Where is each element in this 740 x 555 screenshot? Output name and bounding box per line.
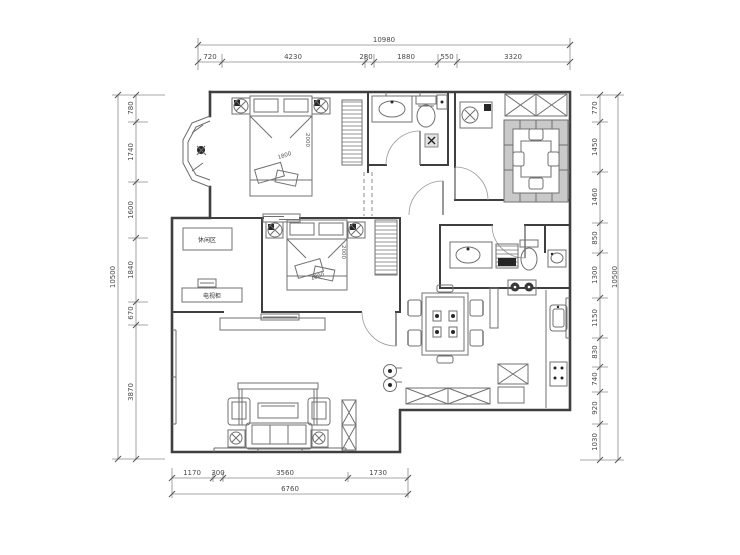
chair-icon [529,178,543,189]
kitchen-sink-icon [550,305,567,331]
place-setting-icon [433,311,441,321]
dim-label: 770 [591,101,599,114]
shelf-icon [437,95,447,109]
side-table-lamp-icon [311,430,328,447]
sink-icon [372,96,412,122]
dim-label: 3320 [504,53,522,61]
dim-label: 1730 [369,469,387,477]
dim-label: 3870 [127,383,135,401]
place-setting-icon [433,327,441,337]
dimension-bottom: 1170 300 3560 1730 6760 [169,468,411,498]
nightstand-icon [348,222,365,238]
dim-label: 550 [440,53,453,61]
chair-icon [513,152,524,166]
nightstand-icon [232,98,250,114]
armchair-icon [308,398,330,425]
dimension-right: 10500 770 1450 1460 850 1300 1150 830 74… [580,92,624,463]
wardrobe-icon [342,100,362,165]
bedroom2: 2000 1800 [266,220,397,290]
dim-label: 10980 [373,36,395,44]
washing-machine-icon [496,244,518,268]
sink-icon [450,242,492,268]
double-bed-icon [250,96,312,196]
dim-label: 740 [591,372,599,385]
study-door [455,167,488,200]
tall-cabinet-icon [342,400,356,450]
cabinet-icon [498,387,524,403]
leisure-area-label: 休闲区 [198,236,216,244]
dim-label: 10500 [611,266,619,288]
dim-label: 920 [591,401,599,414]
hand-basin-icon [548,250,566,267]
toilet-icon [416,96,436,127]
coffee-table-icon [258,403,298,418]
dim-label: 830 [591,345,599,358]
dim-label: 1460 [591,188,599,206]
dimension-top: 10980 720 4230 280 1880 550 3320 [195,36,573,70]
storage-cabinet-icon [505,94,567,116]
chair-icon [470,300,483,316]
sofa-icon [246,423,312,449]
hall-door [409,181,443,215]
living-room [220,314,356,450]
bed2-length-label: 2000 [340,245,346,259]
floor-plan-canvas: 2000 1800 2000 1800 休闲区 电视柜 [0,0,740,555]
tatami-platform-icon [504,120,568,202]
dining-table-icon [422,293,468,355]
bed1-width-label: 1800 [277,151,293,161]
floor-plan-page: 2000 1800 2000 1800 休闲区 电视柜 [0,0,740,555]
chair-icon [548,152,559,166]
cased-opening-dashes [364,172,372,216]
dim-label: 1170 [183,469,201,477]
dim-label: 1300 [591,266,599,284]
dim-label: 780 [127,101,135,114]
dim-label: 1450 [591,138,599,156]
chair-icon [408,330,421,346]
nightstand-icon [312,98,330,114]
nightstand-icon [266,222,283,238]
dim-label: 850 [591,231,599,244]
base-cabinet-icon [498,364,528,384]
fridge-icon [550,362,567,386]
chair-icon [408,300,421,316]
dim-label: 4230 [284,53,302,61]
kitchen-tall-cabinet [490,288,498,328]
bathroom1-door [386,131,420,165]
tv-cabinet-label: 电视柜 [203,292,221,300]
water-heater-icon [384,365,403,392]
kitchen [384,280,568,408]
tv-icon [261,314,299,320]
place-setting-icon [449,327,457,337]
tea-table-icon [521,141,551,177]
dimension-left: 10500 780 1740 1600 1840 670 3870 [109,92,165,462]
bedroom1: 2000 1800 [232,96,362,196]
dim-label: 720 [203,53,216,61]
floor-drain-icon [425,134,438,147]
toilet-icon [520,240,538,270]
dim-label: 3560 [276,469,294,477]
dim-label: 280 [359,53,372,61]
chair-icon [437,356,453,363]
study-room [460,94,568,202]
dining-area [408,285,483,363]
dim-label: 6760 [281,485,299,493]
bathroom2 [450,240,566,270]
chair-icon [470,330,483,346]
bedroom2-door [362,312,396,346]
dim-label: 1880 [397,53,415,61]
dim-label: 1840 [127,261,135,279]
bedroom1-sliding-door [263,214,300,222]
dim-label: 1030 [591,433,599,451]
dim-label: 1740 [127,143,135,161]
side-table-lamp-icon [228,430,245,447]
place-setting-icon [449,311,457,321]
chair-icon [529,129,543,140]
dim-label: 1600 [127,201,135,219]
dim-label: 300 [211,469,224,477]
wardrobe-icon [375,220,397,275]
desk-icon [460,102,492,128]
bay-window [183,116,210,187]
bathroom1 [372,95,447,147]
dim-label: 670 [127,306,135,319]
leisure-area: 休闲区 电视柜 [182,228,242,302]
bed2-width-label: 1800 [310,272,326,282]
storage-bench-icon [406,388,490,404]
dim-label: 10500 [109,266,117,288]
dim-label: 1150 [591,309,599,327]
bed1-length-label: 2000 [304,133,310,147]
